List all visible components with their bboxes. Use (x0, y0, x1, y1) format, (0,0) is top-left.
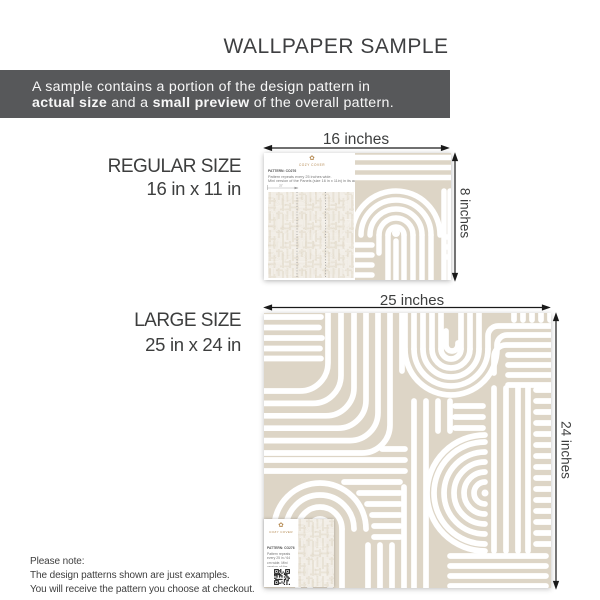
svg-text:8 inches: 8 inches (458, 188, 473, 239)
svg-text:16 inches: 16 inches (323, 131, 390, 148)
svg-text:24 inches: 24 inches (559, 421, 574, 479)
svg-text:25": 25" (279, 184, 283, 188)
svg-text:25 inches: 25 inches (380, 292, 444, 309)
